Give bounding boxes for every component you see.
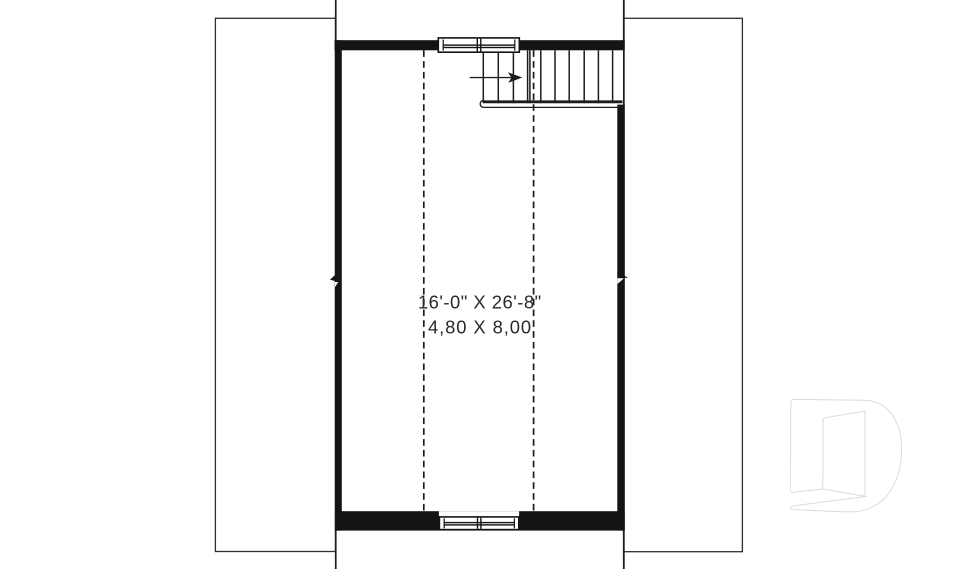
svg-text:4,80 X 8,00: 4,80 X 8,00 xyxy=(428,316,532,337)
svg-text:16'-0" X 26'-8": 16'-0" X 26'-8" xyxy=(418,292,542,313)
